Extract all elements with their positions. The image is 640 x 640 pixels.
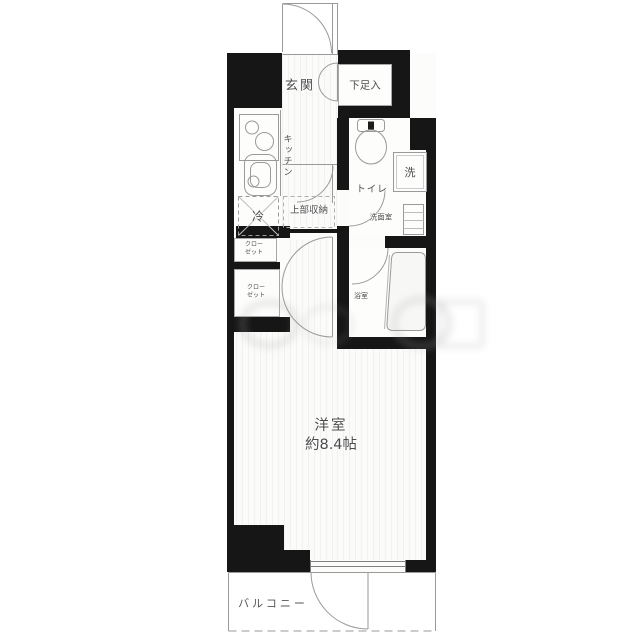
- closet-lower-label: クロー ゼット: [247, 284, 265, 300]
- closet-upper-line1: クロー: [245, 241, 263, 248]
- wall-segment: [392, 64, 410, 108]
- balcony-label: バルコニー: [238, 595, 308, 611]
- closet-lower-line2: ゼット: [247, 292, 265, 299]
- toilet-label: トイレ: [356, 181, 388, 195]
- wall-segment: [227, 53, 282, 108]
- wall-segment: [385, 236, 426, 248]
- main-room-size: 約8.4帖: [305, 437, 357, 453]
- wall-segment: [227, 525, 284, 550]
- wall-segment: [337, 118, 349, 190]
- main-room-label: 洋室 約8.4帖: [305, 417, 357, 455]
- wall-segment: [410, 118, 436, 150]
- genkan-label: 玄関: [285, 75, 315, 94]
- wall-segment: [230, 262, 280, 269]
- wall-segment: [337, 337, 436, 349]
- bathroom-label: 浴室: [354, 291, 368, 301]
- wall-segment: [338, 106, 410, 118]
- wall-segment: [236, 226, 290, 238]
- watermark-blob: [436, 298, 486, 350]
- wall-segment: [227, 317, 290, 332]
- kitchen-label: キッチン: [281, 134, 294, 178]
- balcony-door-icon: [311, 572, 368, 629]
- main-room-name: 洋室: [315, 418, 348, 434]
- wall-segment: [426, 150, 436, 562]
- wall-segment: [290, 229, 337, 233]
- entrance-door-icon: [283, 3, 339, 55]
- wall-segment: [227, 550, 310, 572]
- washroom-label: 洗面室: [370, 212, 393, 223]
- closet-upper-label: クロー ゼット: [245, 241, 263, 257]
- shoe-storage-label: 下足入: [349, 78, 381, 93]
- closet-lower-line1: クロー: [247, 284, 265, 291]
- upper-storage-label: 上部収納: [290, 202, 328, 216]
- wall-segment: [337, 226, 349, 337]
- floorplan-image: 玄関 下足入 キッチン 冷 上部収納 トイレ 洗 洗面室 クロー ゼット クロー…: [0, 0, 640, 640]
- closet-upper-line2: ゼット: [245, 249, 263, 256]
- fridge-label: 冷: [252, 208, 264, 225]
- washer-label: 洗: [405, 164, 416, 180]
- wall-segment: [338, 50, 410, 64]
- wall-segment: [406, 560, 436, 572]
- hall-floor: [290, 240, 337, 332]
